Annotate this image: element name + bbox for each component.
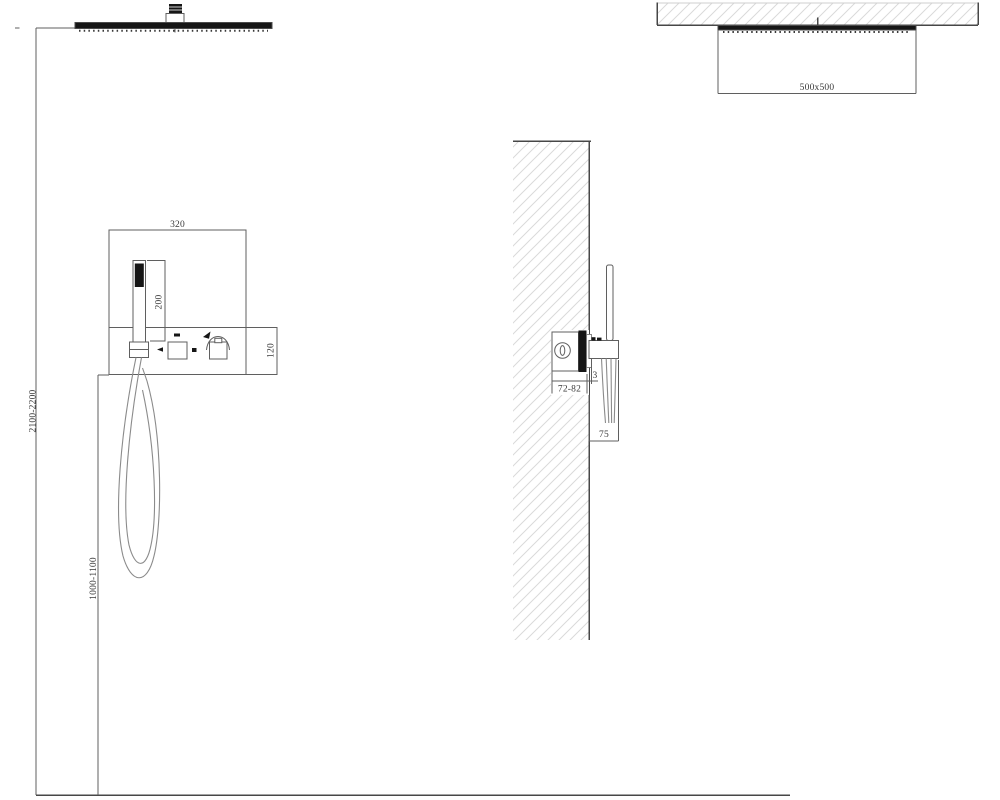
button-dot-mark <box>192 348 197 352</box>
hand-shower-wand-side <box>607 265 614 341</box>
controls <box>157 332 230 360</box>
diverter-button <box>168 342 187 359</box>
knob-index-notch <box>215 338 222 342</box>
valve-assembly-side <box>552 331 592 373</box>
hose-side-line <box>606 359 609 424</box>
holder-bracket-side <box>589 341 619 359</box>
bracket-clamp-nub <box>592 337 596 340</box>
dim-hand-shower-length: 200 <box>155 295 165 310</box>
hose-side-line <box>614 359 616 424</box>
bracket-clamp-nub <box>597 338 602 341</box>
hose-side-line <box>602 359 606 424</box>
front-view: 320 200 120 2100-2200 1000-1100 <box>15 4 790 795</box>
shower-head-plate-side <box>718 26 916 31</box>
dimensions-front: 320 200 120 2100-2200 1000-1100 <box>29 220 277 795</box>
hose-side-line <box>611 359 612 424</box>
side-view: 72-82 3 75 <box>513 141 619 640</box>
rotation-arrow-icon <box>203 332 211 339</box>
hand-shower-side <box>589 265 619 423</box>
hand-shower-spray-face <box>135 264 144 288</box>
dim-head-height-range: 2100-2200 <box>29 389 39 432</box>
supply-connector-nut <box>169 4 182 14</box>
trim-plate-section <box>579 331 587 373</box>
mode-indicator-mark <box>174 334 180 337</box>
technical-drawing: 320 200 120 2100-2200 1000-1100 <box>0 0 1000 800</box>
dim-holder-depth: 75 <box>599 430 609 440</box>
dim-head-size: 500x500 <box>800 83 835 93</box>
ceiling-mount-collar <box>166 14 184 24</box>
dim-trim-gap: 3 <box>593 371 598 381</box>
dim-valve-depth-range: 72-82 <box>558 385 581 395</box>
dim-trim-height: 120 <box>267 343 277 358</box>
room-outline <box>15 28 790 795</box>
dim-panel-height-range: 1000-1100 <box>89 557 99 600</box>
temperature-knob <box>210 342 228 359</box>
hand-shower-front <box>130 261 149 358</box>
dim-panel-width: 320 <box>170 220 185 230</box>
flow-arrow-icon <box>157 347 163 351</box>
drawing-canvas: 320 200 120 2100-2200 1000-1100 <box>0 0 1000 800</box>
shower-hose <box>119 358 160 578</box>
ceiling-view: 500x500 <box>657 3 978 94</box>
shower-head-plate <box>75 23 272 29</box>
rain-shower-head-front <box>75 4 272 33</box>
